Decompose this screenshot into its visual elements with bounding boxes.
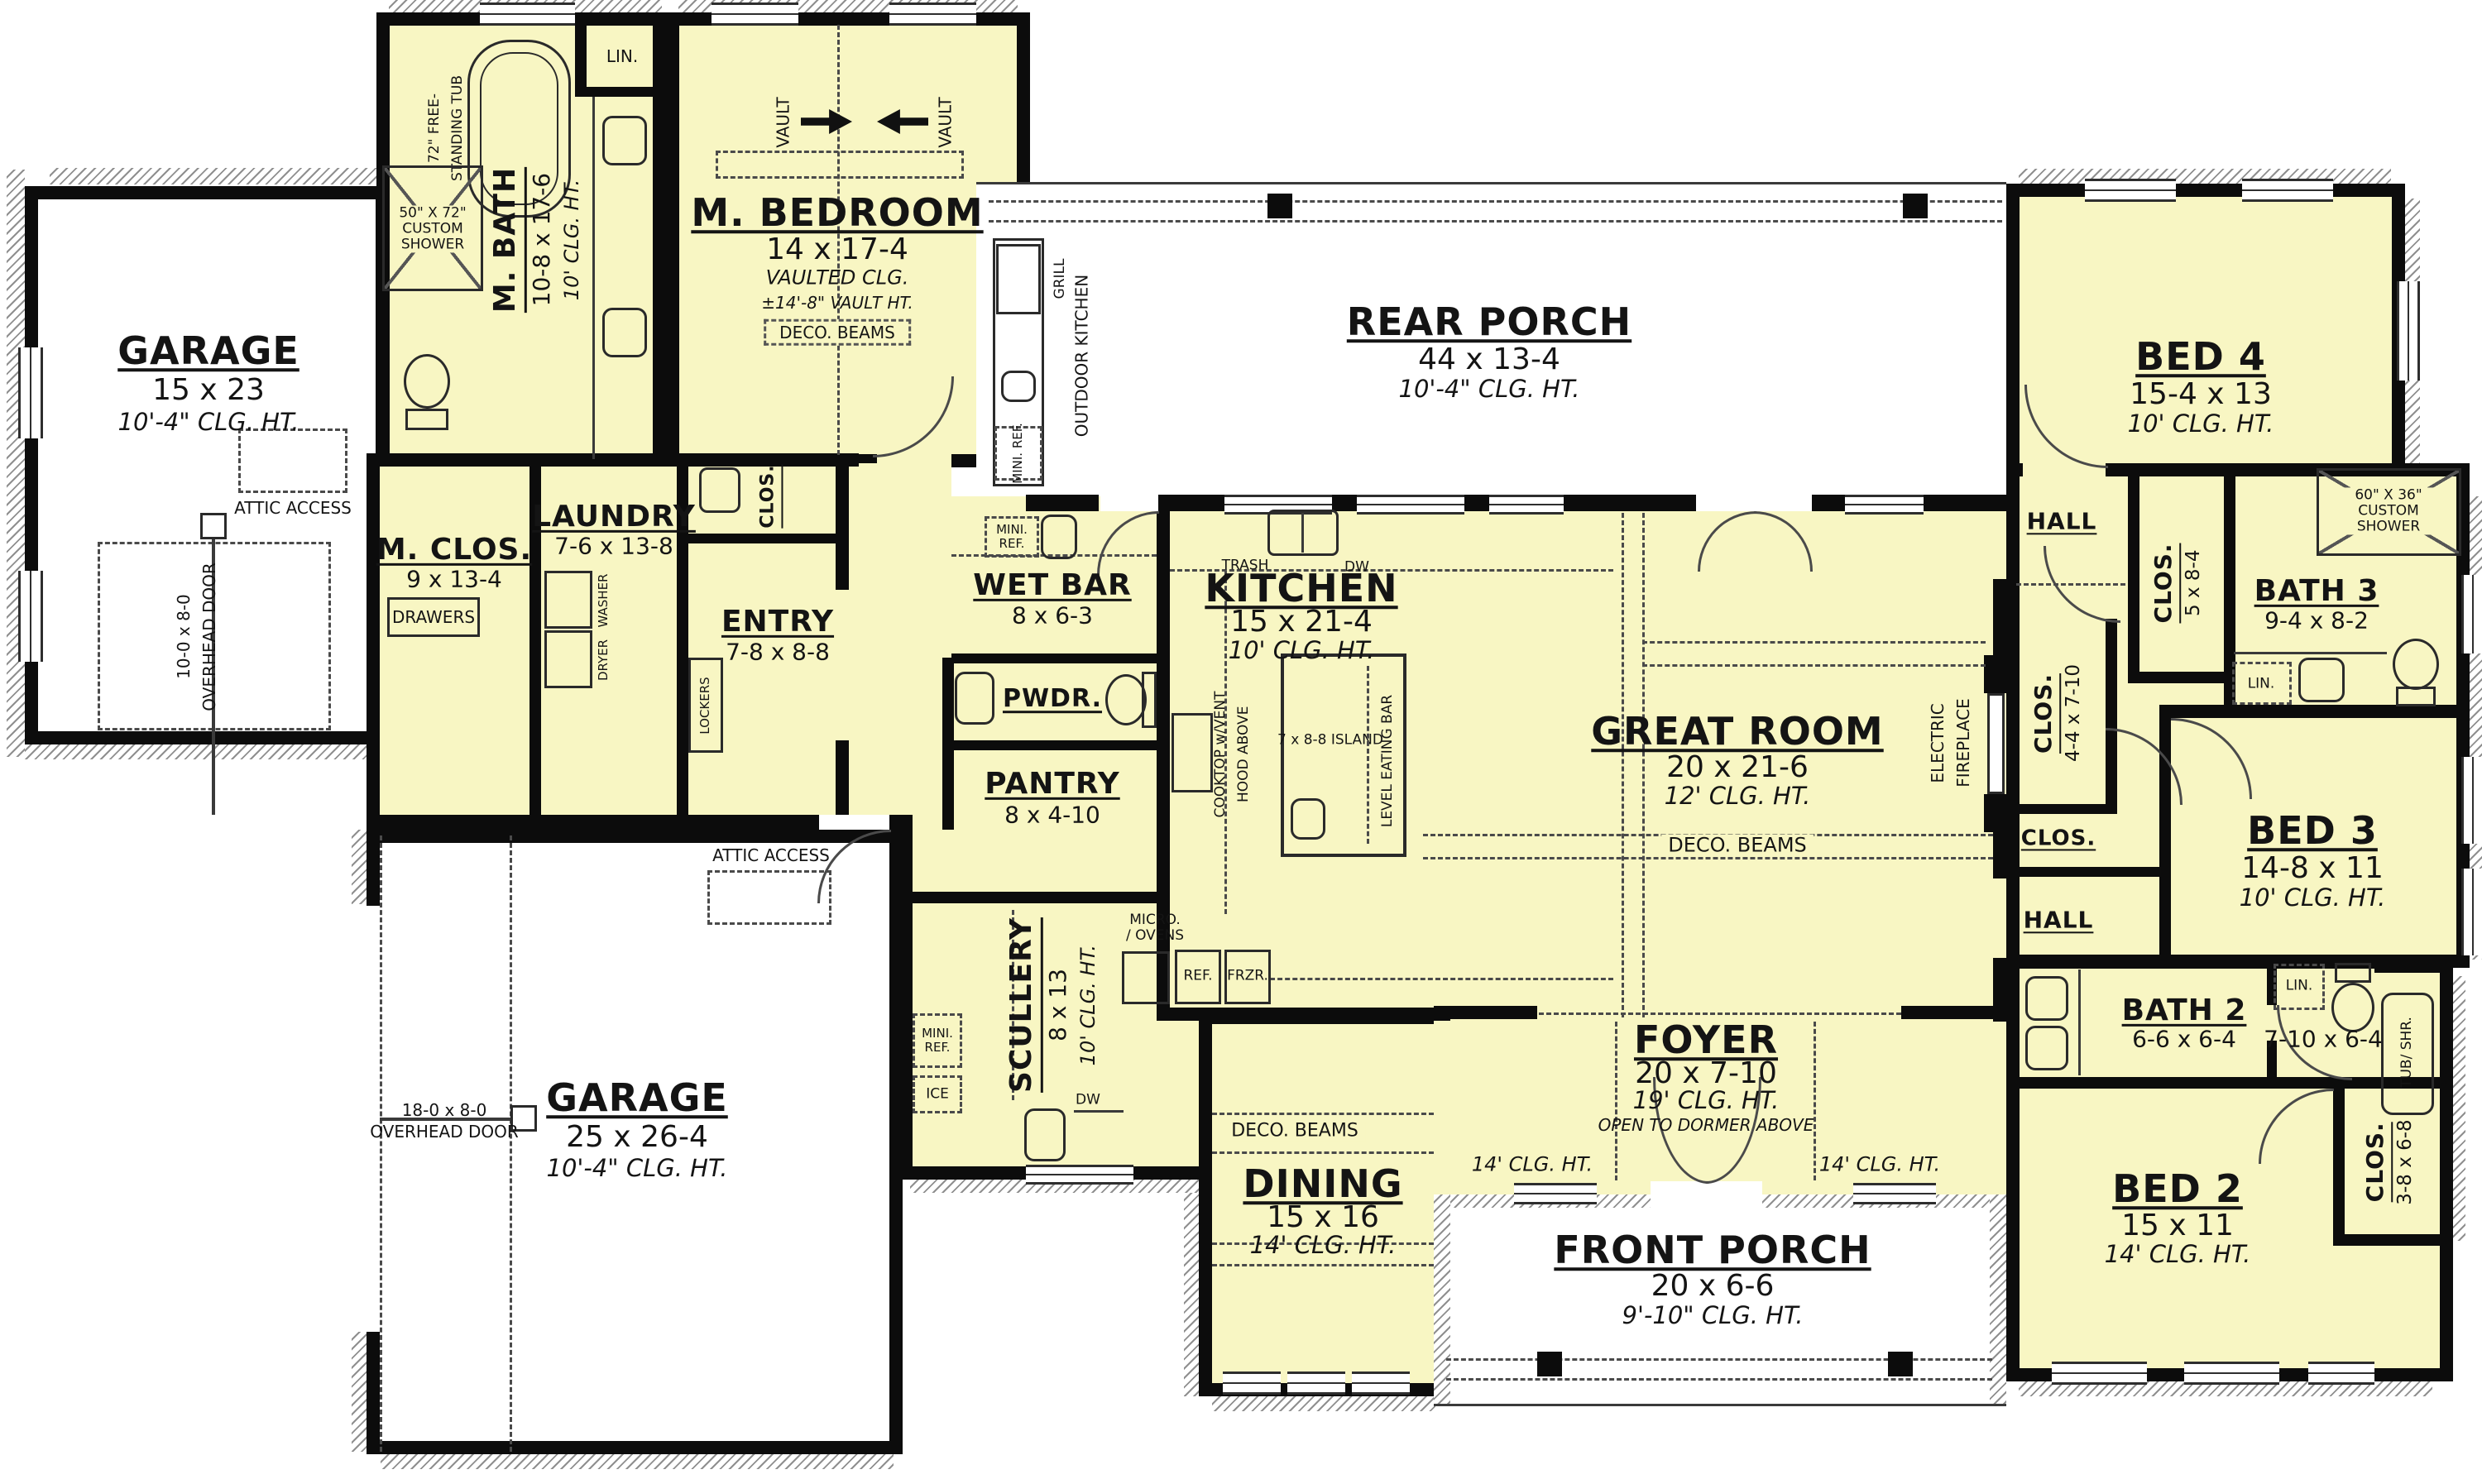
bath2-sink — [2025, 976, 2068, 1021]
window — [712, 2, 798, 26]
mbedroom-vault: ±14'-8" VAULT HT. — [761, 294, 913, 312]
attic-access-box — [707, 870, 831, 925]
floor-plan: 10-0 x 8-0 OVERHEAD DOOR ATTIC ACCESS 18… — [0, 0, 2482, 1484]
wall — [1993, 579, 2006, 662]
washer-label: WASHER — [597, 574, 611, 628]
hall-open-line — [2016, 583, 2125, 586]
porch-beam-line — [989, 220, 2002, 223]
window — [1357, 495, 1464, 515]
hatch-strip — [352, 830, 367, 904]
window — [480, 2, 575, 26]
attic-access-label: ATTIC ACCESS — [234, 499, 352, 517]
garage1-title: GARAGE — [117, 330, 299, 373]
porch-beam-line — [1446, 1378, 1992, 1381]
hatch-strip — [352, 1332, 367, 1452]
mbedroom-beams: DECO. BEAMS — [764, 319, 911, 346]
mclos-title: M. CLOS. — [376, 534, 532, 567]
hatch-strip — [1434, 1194, 1450, 1404]
pwdr-sink — [955, 672, 994, 725]
foyer-open-line — [1539, 1012, 1901, 1015]
overhead-door-track — [510, 835, 512, 1452]
outdoor-kitchen-label: OUTDOOR KITCHEN — [1074, 275, 1091, 437]
micro-ovens — [1122, 951, 1170, 1004]
kitchen-clg: 10' CLG. HT. — [1229, 637, 1375, 663]
wetbar-dim: 8 x 6-3 — [1012, 602, 1093, 628]
garage1-dim: 15 x 23 — [152, 374, 265, 407]
foyer-clg: 19' CLG. HT. — [1633, 1087, 1780, 1113]
window — [18, 571, 43, 662]
wall — [2374, 958, 2453, 973]
hatch-strip — [2453, 976, 2465, 1241]
porch-post — [1888, 1352, 1913, 1376]
vanity-edge — [2078, 969, 2081, 1075]
hatch-strip — [1212, 1396, 1435, 1411]
vanity-edge — [592, 97, 595, 459]
door-opening — [819, 815, 889, 830]
linen-label: LIN. — [606, 47, 638, 65]
bed4-clg: 10' CLG. HT. — [2128, 410, 2274, 437]
bed4-title: BED 4 — [2135, 336, 2266, 379]
tub-shr-label: TUB/ SHR. — [2400, 1017, 2415, 1088]
rearporch-dim: 44 x 13-4 — [1418, 343, 1560, 376]
toilet-tank — [405, 409, 448, 430]
cooktop-label: COOKTOP w/VENT HOOD ABOVE — [1214, 692, 1252, 818]
wall — [2006, 804, 2117, 814]
vestibule-area — [836, 463, 951, 513]
scullery-sink — [1024, 1108, 1066, 1161]
window — [1489, 495, 1564, 515]
window — [2461, 575, 2482, 653]
window — [2461, 869, 2482, 955]
window — [1352, 1372, 1410, 1395]
bath3-toilet-tank — [2396, 687, 2436, 706]
beam-line — [1212, 1113, 1434, 1115]
counter-line — [1270, 978, 1613, 980]
beam-line — [1642, 641, 1986, 644]
wall — [942, 658, 954, 750]
wall — [1993, 958, 2006, 1022]
front-porch-edge — [1434, 1404, 2006, 1406]
pwdr-title: PWDR. — [1003, 685, 1102, 713]
window — [2184, 1362, 2279, 1385]
bath2-dim: 6-6 x 6-4 — [2132, 1026, 2236, 1051]
wall — [2333, 1088, 2345, 1241]
window — [2308, 1362, 2374, 1385]
garage2-door-label: OVERHEAD DOOR — [370, 1123, 519, 1141]
wall — [1157, 1008, 1450, 1021]
porch-beam-line — [989, 200, 2002, 203]
hatch-strip — [2019, 169, 2391, 184]
overhead-door-box — [200, 513, 227, 539]
wetbar-sink — [1041, 515, 1077, 559]
wall — [2333, 1234, 2453, 1246]
master-shower-label: 50" X 72" CUSTOM SHOWER — [390, 205, 476, 252]
hatch-strip — [50, 168, 385, 184]
window — [889, 2, 976, 26]
bed2-dim: 15 x 11 — [2121, 1209, 2234, 1242]
wall — [2006, 867, 2163, 877]
door-opening — [1696, 495, 1812, 511]
window — [2085, 179, 2176, 202]
dryer — [544, 630, 592, 688]
vault-label-left: VAULT — [775, 97, 793, 147]
bath3-toilet — [2393, 639, 2439, 690]
foyer-dormer-line — [1615, 1022, 1617, 1180]
window — [1853, 1183, 1936, 1204]
entry-closet-label: CLOS. — [758, 464, 777, 528]
hatch-strip — [1990, 1194, 2006, 1404]
pantry-title: PANTRY — [985, 768, 1119, 801]
fireplace-label: ELECTRIC FIREPLACE — [1929, 698, 1972, 787]
garage2-dim: 25 x 26-4 — [566, 1121, 708, 1154]
outdoor-grill — [996, 244, 1041, 314]
kitchen-dim: 15 x 21-4 — [1230, 606, 1373, 639]
window — [2461, 757, 2482, 844]
wall — [898, 830, 913, 1177]
ice-label: ICE — [926, 1086, 949, 1102]
laundry-title: LAUNDRY — [532, 500, 696, 534]
wall — [1026, 495, 1099, 511]
toilet — [404, 354, 450, 409]
dining-dim: 15 x 16 — [1267, 1201, 1379, 1234]
bath2-dim2: 7-10 x 6-4 — [2264, 1026, 2383, 1051]
entry-dim: 7-8 x 8-8 — [726, 639, 830, 664]
grill-label: GRILL — [1053, 259, 1068, 299]
wall — [951, 653, 1158, 663]
frontporch-title: FRONT PORCH — [1554, 1229, 1871, 1272]
bed2-title: BED 2 — [2112, 1168, 2243, 1211]
bath3-shower-label: 60" X 36" CUSTOM SHOWER — [2339, 487, 2438, 534]
deco-beam-box — [716, 151, 964, 179]
porch-post — [1903, 194, 1928, 218]
scullery-dw-label: DW — [1076, 1092, 1100, 1108]
bath3-dim: 9-4 x 8-2 — [2264, 607, 2369, 633]
door-opening — [1100, 495, 1158, 511]
porch-post — [1267, 194, 1292, 218]
hatch-strip — [25, 743, 389, 759]
hall2-label: HALL — [2024, 907, 2094, 932]
lockers-label: LOCKERS — [699, 677, 712, 734]
bath2-title: BATH 2 — [2122, 994, 2247, 1027]
window — [1223, 1372, 1281, 1395]
vault-label-right: VAULT — [937, 97, 955, 147]
hatch-strip — [381, 1454, 894, 1469]
kitchen-great-divider — [1622, 513, 1624, 1017]
frontporch-dim: 20 x 6-6 — [1651, 1270, 1775, 1303]
kitchen-great-divider — [1642, 513, 1645, 1017]
window — [1514, 1183, 1597, 1204]
bath2-toilet-tank — [2335, 963, 2371, 983]
cooktop — [1172, 713, 1213, 792]
wall — [575, 87, 666, 97]
clos-hall-label: CLOS. 4-4 x 7-10 — [2031, 664, 2084, 762]
pwdr-toilet — [1105, 674, 1147, 725]
wall — [1901, 1006, 2006, 1019]
clos-small-label: CLOS. — [2021, 826, 2096, 850]
garage2-title: GARAGE — [546, 1077, 728, 1120]
mbedroom-clg: VAULTED CLG. — [766, 267, 909, 290]
wetbar-miniref-label: MINI. REF. — [988, 523, 1036, 551]
attic-access-box — [238, 428, 347, 493]
bath2-linen-label: LIN. — [2286, 978, 2313, 993]
sink-divider — [1301, 513, 1304, 553]
frzr-label: FRZR. — [1227, 968, 1268, 984]
foyer-note: OPEN TO DORMER ABOVE — [1598, 1116, 1814, 1134]
hall1-label: HALL — [2027, 508, 2097, 534]
bed3-dim: 14-8 x 11 — [2241, 852, 2384, 885]
window — [18, 347, 43, 438]
wall — [1434, 1006, 1537, 1019]
outdoor-sink — [1001, 371, 1036, 402]
laundry-sink — [699, 467, 740, 513]
wall — [942, 892, 1170, 903]
dining-clg: 14' CLG. HT. — [1250, 1232, 1397, 1258]
bed3-clg: 10' CLG. HT. — [2240, 884, 2386, 911]
wall — [2128, 672, 2235, 683]
wall — [367, 453, 380, 830]
greatroom-title: GREAT ROOM — [1591, 711, 1883, 754]
attic-access-label: ATTIC ACCESS — [712, 846, 830, 864]
wall — [836, 453, 849, 590]
window — [2397, 281, 2420, 381]
wall — [683, 534, 842, 543]
ref-label: REF. — [1183, 968, 1212, 984]
electric-fireplace — [1987, 693, 2005, 794]
drawers-label: DRAWERS — [392, 608, 475, 626]
rearporch-title: REAR PORCH — [1347, 301, 1632, 344]
clos-bed4-label: CLOS. 5 x 8-4 — [2151, 543, 2204, 624]
washer — [544, 571, 592, 629]
pantry-dim: 8 x 4-10 — [1004, 802, 1100, 827]
micro-ovens-label: MICRO./ OVENS — [1126, 912, 1184, 944]
rearporch-clg: 10'-4" CLG. HT. — [1399, 376, 1580, 402]
eating-bar-line — [1367, 666, 1369, 844]
hatch-strip — [7, 170, 25, 757]
mbedroom-title: M. BEDROOM — [691, 192, 983, 235]
bath2-sink — [2025, 1026, 2068, 1070]
foyer-clg14-left: 14' CLG. HT. — [1472, 1154, 1593, 1176]
beam-line — [1212, 1151, 1434, 1154]
bed4-dim: 15-4 x 13 — [2130, 378, 2272, 411]
bath3-linen-label: LIN. — [2248, 676, 2275, 692]
mbedroom-dim: 14 x 17-4 — [766, 233, 908, 266]
garage2-door-opening — [367, 906, 380, 1332]
garage1-overhead-door-label: 10-0 x 8-0 OVERHEAD DOOR — [175, 562, 218, 711]
greatroom-dim: 20 x 21-6 — [1666, 751, 1809, 784]
overhead-door-track — [380, 835, 382, 1452]
sink — [602, 308, 647, 357]
wall — [2159, 705, 2470, 718]
bath3-sink — [2298, 658, 2345, 702]
garage2-clg: 10'-4" CLG. HT. — [547, 1155, 728, 1181]
wall — [367, 453, 859, 467]
foyer-clg14-right: 14' CLG. HT. — [1819, 1154, 1940, 1176]
dining-beams-label: DECO. BEAMS — [1224, 1122, 1365, 1142]
garage2-door-size: 18-0 x 8-0 — [402, 1101, 487, 1119]
beam-line — [1212, 1264, 1434, 1266]
clos-bed2-label: CLOS. 3-8 x 6-8 — [2363, 1119, 2416, 1204]
wall — [575, 25, 587, 91]
window — [1845, 495, 1924, 515]
garage1-clg: 10'-4" CLG. HT. — [118, 409, 299, 435]
sink — [602, 116, 647, 165]
rear-porch-edge — [976, 182, 2006, 184]
foyer-dormer-line — [1814, 1022, 1816, 1180]
wall — [1993, 827, 2006, 878]
greatroom-clg: 12' CLG. HT. — [1665, 783, 1811, 809]
greatroom-beams-label: DECO. BEAMS — [1661, 835, 1814, 857]
wall — [951, 740, 1158, 750]
wall — [942, 749, 954, 830]
bath3-title: BATH 3 — [2254, 575, 2379, 608]
laundry-dim: 7-6 x 13-8 — [554, 533, 673, 558]
pwdr-toilet-tank — [1142, 672, 1157, 728]
vanity-edge — [2234, 652, 2387, 654]
island-sink — [1291, 798, 1325, 840]
dryer-label: DRYER — [597, 639, 611, 681]
frontporch-clg: 9'-10" CLG. HT. — [1622, 1302, 1804, 1328]
window — [1287, 1372, 1345, 1395]
window — [2242, 179, 2333, 202]
bed2-clg: 14' CLG. HT. — [2105, 1241, 2251, 1267]
wall — [2128, 463, 2139, 674]
fireplace-jamb — [1984, 794, 2006, 832]
bed3-title: BED 3 — [2247, 810, 2378, 853]
window — [2052, 1362, 2147, 1385]
mclos-dim: 9 x 13-4 — [406, 566, 502, 591]
counter-edge — [1074, 1110, 1124, 1113]
entry-title: ENTRY — [721, 606, 834, 639]
beam-line — [1642, 664, 1986, 667]
wetbar-title: WET BAR — [973, 569, 1131, 602]
hatch-strip — [1184, 1183, 1199, 1396]
scullery-miniref-label: MINI. REF. — [914, 1027, 961, 1055]
eating-bar-label: LEVEL EATING BAR — [1381, 695, 1396, 827]
scullery-label: SCULLERY 8 x 13 10' CLG. HT. — [1006, 917, 1099, 1093]
porch-post — [1537, 1352, 1562, 1376]
beam-line — [1423, 857, 1993, 859]
window — [1026, 1165, 1133, 1185]
outdoor-miniref-label: MINI. REF. — [1012, 423, 1025, 483]
fireplace-jamb — [1984, 655, 2006, 693]
mbath-label: M. BATH 10-8 x 17-6 10' CLG. HT. — [490, 167, 582, 313]
